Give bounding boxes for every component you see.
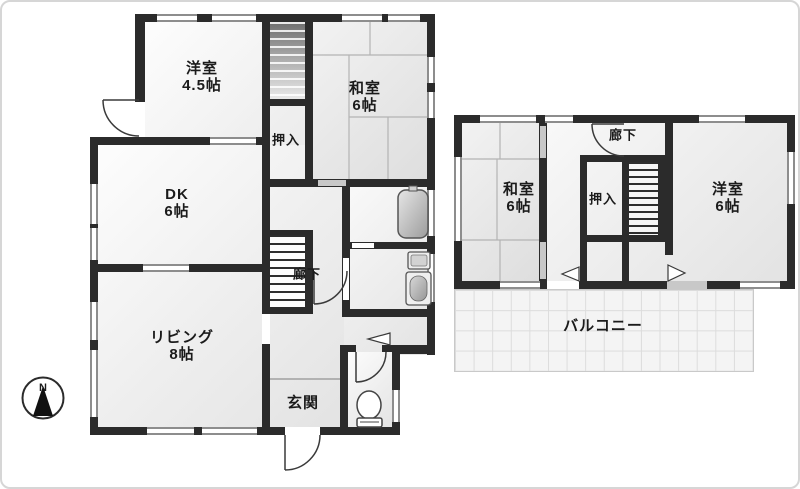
f2-yoshitsu-size: 6帖 (712, 199, 744, 216)
f1-window-yoshitsu-top-1 (157, 14, 197, 22)
f1-window-living-left-2 (90, 350, 98, 417)
f1-window-washitsu-right-1 (427, 57, 435, 83)
f1-living-name: リビング (150, 330, 214, 347)
f1-wall-toilet-top-left (340, 345, 356, 352)
f1-wall-stair-oshiire-divider (270, 99, 305, 106)
f1-window-yoshitsu-top-2 (212, 14, 256, 22)
f2-wall-oshiire-left (580, 155, 587, 289)
f2-washitsu-name: 和室 (503, 182, 535, 199)
f2-opening-washitsu-entry-2 (540, 242, 546, 279)
f1-label-yoshitsu: 洋室 4.5帖 (182, 61, 222, 95)
f2-wall-yoshitsu-left (665, 123, 673, 255)
f1-wall-genkan-toilet (340, 352, 348, 435)
f1-wall-stairs-lower-bottom (270, 307, 313, 314)
f1-opening-bath-door (352, 243, 374, 248)
f1-yoshitsu-name: 洋室 (182, 61, 222, 78)
f2-opening-washitsu-entry-1 (540, 126, 546, 158)
f2-yoshitsu-name: 洋室 (712, 182, 744, 199)
f1-yoshitsu-size: 4.5帖 (182, 78, 222, 95)
f1-oshiire-name: 押入 (272, 134, 300, 149)
f1-window-bath-right (427, 190, 435, 236)
f2-window-yoshitsu-bottom (740, 281, 780, 289)
f2-label-washitsu: 和室 6帖 (503, 182, 535, 216)
entrance-door-arc (285, 435, 320, 470)
f1-label-washitsu: 和室 6帖 (349, 81, 381, 115)
f1-rouka-name: 廊下 (293, 268, 321, 283)
f1-opening-washroom-door (343, 258, 349, 300)
f2-window-washitsu-top (480, 115, 536, 123)
f1-wall-washroom-bottom (342, 309, 435, 317)
f2-label-oshiire: 押入 (589, 193, 617, 208)
f2-label-balcony: バルコニー (563, 319, 643, 336)
f1-label-rouka: 廊下 (293, 268, 321, 283)
f1-label-oshiire: 押入 (272, 134, 300, 149)
f2-wall-oshiire-right (622, 155, 629, 289)
f2-window-yoshitsu-top (699, 115, 745, 123)
f2-wall-oshiire-bottom (580, 235, 665, 242)
f1-wall-washitsu-bottom (262, 179, 435, 187)
f1-opening-washitsu-entry (318, 180, 346, 186)
f1-washitsu-name: 和室 (349, 81, 381, 98)
f1-window-dk-left-2 (90, 228, 98, 260)
f1-window-living-left-1 (90, 302, 98, 340)
f1-opening-dk-living (143, 264, 189, 272)
f2-window-washitsu-left (454, 157, 462, 241)
f1-label-living: リビング 8帖 (150, 330, 214, 364)
f1-dk-name: DK (164, 187, 189, 204)
f2-wall-stairs-right (658, 155, 665, 242)
f1-living-size: 8帖 (150, 347, 214, 364)
f2-label-rouka: 廊下 (609, 129, 637, 144)
f2-opening-balcony-door-2 (667, 281, 707, 289)
compass-north-arrow-icon (33, 386, 53, 416)
compass-north-label: N (39, 382, 47, 394)
floor-plan-canvas: 洋室 4.5帖 和室 6帖 押入 DK 6帖 廊下 リビング 8帖 玄関 廊下 … (0, 0, 800, 489)
f2-window-rouka-top (545, 115, 573, 123)
f1-window-washroom-right (427, 254, 435, 302)
compass-north-indicator: N (23, 378, 64, 419)
f1-opening-spine-door (262, 314, 270, 344)
f2-washitsu-size: 6帖 (503, 199, 535, 216)
f1-window-living-bottom-1 (147, 427, 194, 435)
f1-wall-yoshitsu-left (135, 14, 145, 104)
f1-label-dk: DK 6帖 (164, 187, 189, 221)
f1-window-living-bottom-2 (202, 427, 257, 435)
f1-wall-stair-right (305, 14, 313, 187)
f1-genkan-name: 玄関 (287, 396, 319, 413)
f1-window-dk-left-1 (90, 184, 98, 224)
f2-staircase (629, 162, 658, 235)
f1-wall-center-spine (262, 14, 270, 435)
f2-window-yoshitsu-right (787, 152, 795, 204)
f1-yoshitsu-door-arc (103, 100, 139, 136)
f1-washitsu-size: 6帖 (349, 98, 381, 115)
f2-label-yoshitsu: 洋室 6帖 (712, 182, 744, 216)
f2-oshiire-name: 押入 (589, 193, 617, 208)
f1-window-washitsu-right-2 (427, 92, 435, 118)
f1-opening-yoshitsu-dk (210, 137, 256, 145)
f1-window-washitsu-top-2 (388, 14, 420, 22)
f2-wall-oshiire-top (580, 155, 665, 162)
f2-rouka-name: 廊下 (609, 129, 637, 144)
f1-window-toilet-right (392, 390, 400, 422)
f1-dk-size: 6帖 (164, 204, 189, 221)
f1-label-genkan: 玄関 (287, 396, 319, 413)
f1-window-washitsu-top-1 (342, 14, 382, 22)
f1-opening-yoshitsu-door (135, 102, 145, 137)
f1-staircase-upper (270, 22, 305, 99)
f2-opening-balcony-door-1 (547, 281, 579, 289)
f2-balcony-name: バルコニー (563, 319, 643, 336)
f1-opening-entrance (285, 427, 320, 435)
f2-window-washitsu-bottom (500, 281, 540, 289)
f1-wall-toilet-top-right (382, 345, 394, 352)
